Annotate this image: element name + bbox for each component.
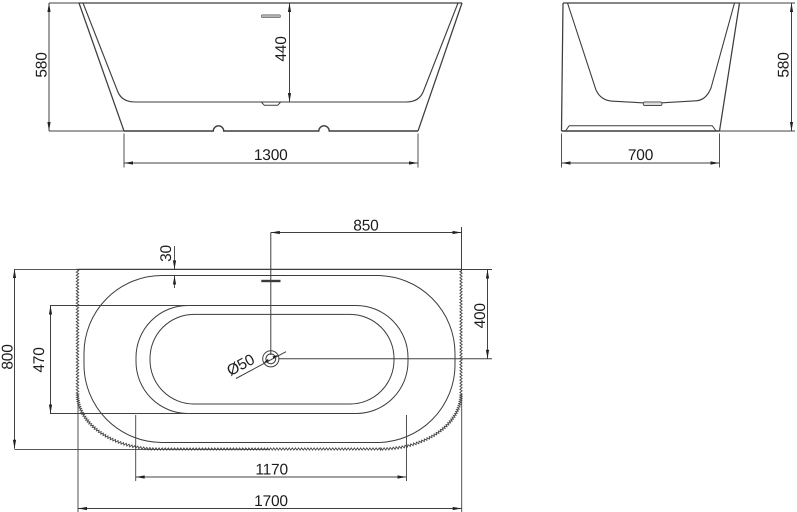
svg-text:1170: 1170 [255,461,288,478]
svg-text:1300: 1300 [254,147,288,164]
svg-text:700: 700 [628,147,654,164]
svg-text:440: 440 [273,36,290,62]
svg-text:580: 580 [776,52,793,78]
svg-text:1700: 1700 [254,493,288,510]
svg-text:850: 850 [353,217,379,234]
svg-text:580: 580 [34,52,51,78]
svg-text:30: 30 [158,245,175,262]
svg-text:470: 470 [31,347,48,373]
svg-text:800: 800 [0,344,17,370]
svg-text:400: 400 [472,303,489,329]
